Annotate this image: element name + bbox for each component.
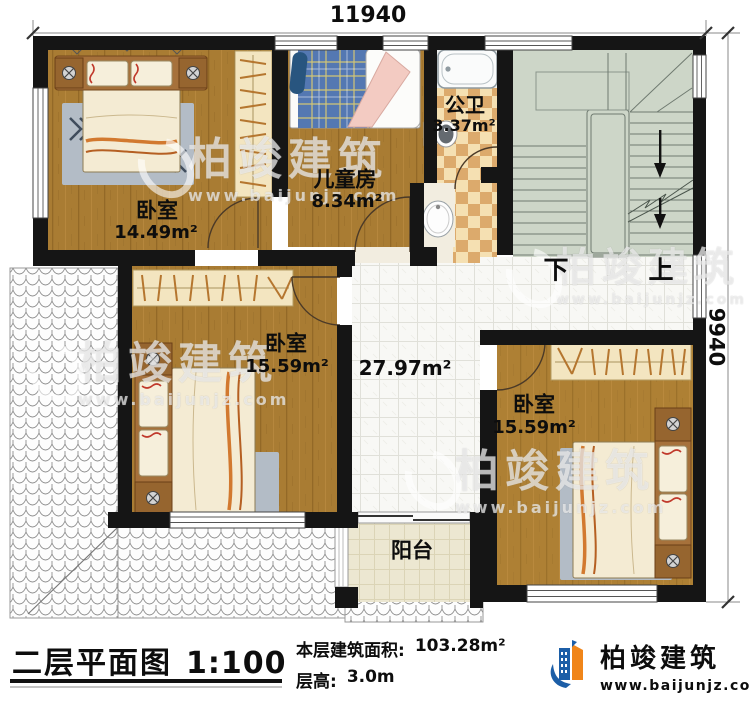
floor-bath-2 bbox=[453, 190, 497, 263]
label-bedroom1-name: 卧室 bbox=[136, 201, 178, 222]
wall-bath-door-stub bbox=[481, 167, 497, 183]
wall-mid-band-b bbox=[258, 250, 355, 266]
floorplan-page: 柏竣建筑 www.baijunjz.com 柏竣建筑 www.baijunjz.… bbox=[0, 0, 750, 706]
brand-building-icon bbox=[546, 638, 592, 690]
floorplan-drawing bbox=[0, 0, 750, 632]
label-bath-name: 公卫 bbox=[445, 95, 485, 115]
wall-kids-bath-lower bbox=[410, 183, 424, 247]
bed-kids bbox=[289, 48, 420, 128]
sink bbox=[423, 201, 453, 237]
bathtub bbox=[438, 50, 497, 88]
wall-bottom-right-a bbox=[480, 585, 527, 602]
label-bedroom3-area: 15.59m² bbox=[492, 419, 576, 437]
label-bedroom2-area: 15.59m² bbox=[245, 358, 329, 376]
window-right-stair bbox=[693, 55, 706, 98]
label-bedroom1-area: 14.49m² bbox=[114, 224, 198, 242]
floor-area-label: 本层建筑面积: bbox=[296, 636, 405, 661]
pillow bbox=[139, 430, 168, 476]
dimension-top-value: 11940 bbox=[330, 5, 407, 27]
wall-bottom-right-b bbox=[657, 585, 706, 602]
wall-bedroom3-top bbox=[480, 330, 693, 345]
wall-bottom-a bbox=[108, 512, 170, 528]
wall-bottom-b bbox=[305, 512, 335, 528]
mattress bbox=[83, 88, 180, 172]
window-bottom-bedroom2 bbox=[170, 512, 305, 528]
window-top-stair bbox=[485, 36, 572, 50]
wall-balcony-pillar-tl bbox=[335, 512, 358, 528]
window-bottom-bedroom3 bbox=[527, 585, 657, 602]
label-kids-area: 8.34m² bbox=[311, 193, 382, 211]
brand-logo: 柏竣建筑 www.baijunjz.com bbox=[546, 638, 750, 694]
wall-bath-stair bbox=[497, 36, 513, 255]
plan-title-scale: 1:100 bbox=[186, 646, 287, 681]
label-bedroom3-name: 卧室 bbox=[513, 395, 555, 416]
window-top-kids bbox=[275, 36, 337, 50]
floor-height-value: 3.0m bbox=[347, 667, 395, 692]
label-bath-area: 3.37m² bbox=[432, 118, 495, 134]
plan-title-name: 二层平面图 bbox=[12, 646, 172, 681]
wall-bedroom2-right-a bbox=[337, 266, 352, 277]
title-block: 二层平面图1:100 本层建筑面积: 103.28m² 层高: 3.0m 柏竣 bbox=[0, 630, 750, 706]
wall-bedroom2-right-b bbox=[337, 325, 352, 513]
title-underline-thick bbox=[10, 679, 282, 683]
label-kids-name: 儿童房 bbox=[314, 170, 377, 191]
floor-staircase bbox=[513, 50, 693, 257]
faucet bbox=[445, 66, 450, 71]
wall-kids-bath-stub bbox=[424, 150, 437, 183]
mattress bbox=[172, 368, 255, 514]
plan-title: 二层平面图1:100 bbox=[12, 638, 287, 682]
wall-outer-top bbox=[33, 36, 706, 50]
balcony-rail bbox=[335, 527, 348, 587]
wall-balcony-pillar-bl bbox=[335, 587, 358, 608]
wardrobe-midleft bbox=[133, 270, 293, 306]
floor-area-value: 103.28m² bbox=[415, 636, 506, 661]
wall-mid-band-c bbox=[410, 247, 437, 266]
faucet bbox=[436, 205, 440, 209]
floor-hall bbox=[352, 263, 480, 513]
label-stairs-down: 下 bbox=[543, 258, 568, 283]
label-stairs-up: 上 bbox=[648, 258, 673, 283]
label-hall-area: 27.97m² bbox=[359, 358, 452, 378]
window-left-bedroom1 bbox=[33, 88, 48, 218]
wall-bedroom1-kids bbox=[272, 36, 288, 197]
wall-bedroom2-left bbox=[118, 266, 132, 527]
bed-topleft bbox=[55, 43, 207, 185]
brand-text: 柏竣建筑 www.baijunjz.com bbox=[600, 638, 750, 694]
label-bedroom2-name: 卧室 bbox=[265, 334, 307, 355]
wardrobe-right bbox=[551, 344, 691, 380]
balcony-slide-door bbox=[358, 512, 470, 523]
wardrobe-topleft bbox=[235, 51, 272, 197]
brand-url: www.baijunjz.com bbox=[600, 678, 750, 694]
brand-name: 柏竣建筑 bbox=[600, 638, 750, 675]
dimension-right-value: 9940 bbox=[706, 308, 727, 366]
window-top-bath bbox=[383, 36, 428, 50]
pillow bbox=[139, 381, 168, 427]
title-underline-thin bbox=[10, 686, 282, 688]
floor-height-label: 层高: bbox=[296, 667, 337, 692]
wall-mid-band-a bbox=[33, 250, 195, 266]
label-balcony-name: 阳台 bbox=[391, 541, 433, 562]
plan-info: 本层建筑面积: 103.28m² 层高: 3.0m bbox=[296, 636, 506, 698]
